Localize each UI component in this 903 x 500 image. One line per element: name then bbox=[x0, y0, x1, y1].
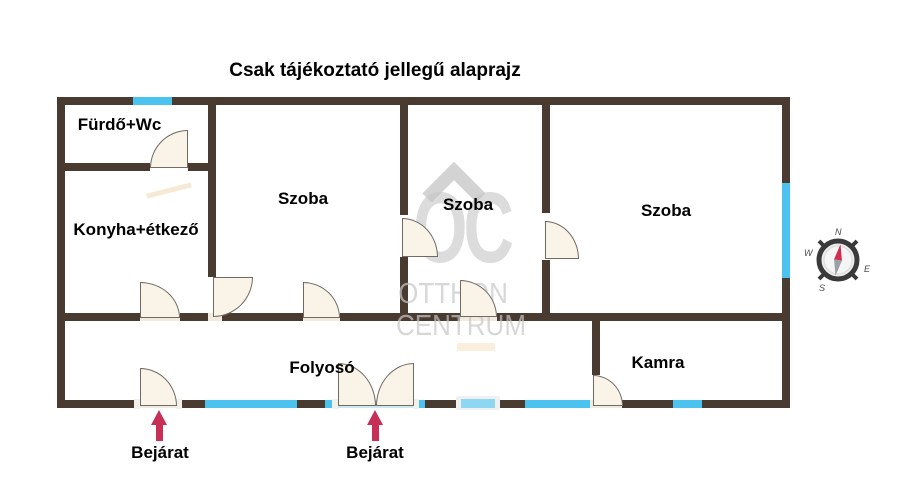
compass-n: N bbox=[835, 227, 842, 237]
wall-segment bbox=[622, 400, 673, 408]
room-label-pantry: Kamra bbox=[608, 353, 708, 373]
room-label-kitchen: Konyha+étkező bbox=[60, 220, 212, 240]
wall-segment bbox=[297, 400, 325, 408]
plan-title: Csak tájékoztató jellegű alaprajz bbox=[225, 60, 525, 82]
entrance-arrow-icon bbox=[156, 424, 163, 441]
door-pantry bbox=[593, 375, 623, 406]
wall-room2-room3 bbox=[542, 260, 550, 313]
wall-segment bbox=[57, 400, 140, 408]
window-bottom bbox=[525, 400, 590, 408]
window-top bbox=[133, 97, 172, 105]
wall-corridor-top bbox=[57, 313, 140, 321]
compass-w: W bbox=[804, 248, 814, 258]
window-right bbox=[782, 183, 790, 278]
window-bottom bbox=[205, 400, 297, 408]
compass-s: S bbox=[819, 283, 825, 293]
door-entrance-double-right-leaf bbox=[376, 363, 414, 406]
door-room2-room3 bbox=[545, 221, 579, 259]
wall-segment bbox=[425, 400, 457, 408]
wall-corridor-top bbox=[222, 313, 303, 321]
door-entrance-left bbox=[140, 368, 177, 406]
entrance-arrow-icon bbox=[372, 424, 379, 441]
wall-corridor-top bbox=[180, 313, 208, 321]
wall-segment bbox=[497, 400, 525, 408]
entrance-arrow-icon bbox=[367, 410, 383, 425]
room-label-corridor: Folyosó bbox=[272, 358, 372, 378]
wall-left bbox=[57, 97, 65, 408]
wall-kitchen-room1 bbox=[208, 97, 216, 277]
door-room1-corridor bbox=[303, 282, 340, 318]
door-bathroom bbox=[150, 130, 188, 168]
wall-bathroom-bottom bbox=[57, 163, 150, 171]
wall-corridor-pantry bbox=[592, 313, 600, 375]
floor-plan: Csak tájékoztató jellegű alaprajz OC OTT… bbox=[0, 0, 903, 500]
watermark-underline bbox=[457, 343, 495, 351]
door-kitchen-corridor bbox=[140, 282, 180, 318]
room-label-room1: Szoba bbox=[253, 189, 353, 209]
room-label-room3: Szoba bbox=[616, 201, 716, 221]
door-kitchen-room1 bbox=[213, 277, 253, 317]
door-swing-shadow bbox=[146, 183, 192, 199]
room-label-bathroom: Fürdő+Wc bbox=[57, 115, 182, 135]
wall-segment bbox=[702, 400, 790, 408]
room-label-room2: Szoba bbox=[418, 195, 518, 215]
entrance-arrow-icon bbox=[151, 410, 167, 425]
entrance-label: Bejárat bbox=[110, 443, 210, 463]
compass-e: E bbox=[864, 264, 871, 274]
wall-room2-room3 bbox=[542, 97, 550, 213]
window-bottom bbox=[673, 400, 702, 408]
entrance-label: Bejárat bbox=[325, 443, 425, 463]
compass-icon: N E S W bbox=[804, 224, 874, 294]
wall-room1-room2 bbox=[400, 97, 408, 215]
wall-corridor-top bbox=[497, 313, 790, 321]
framed-window-glass bbox=[461, 399, 495, 408]
